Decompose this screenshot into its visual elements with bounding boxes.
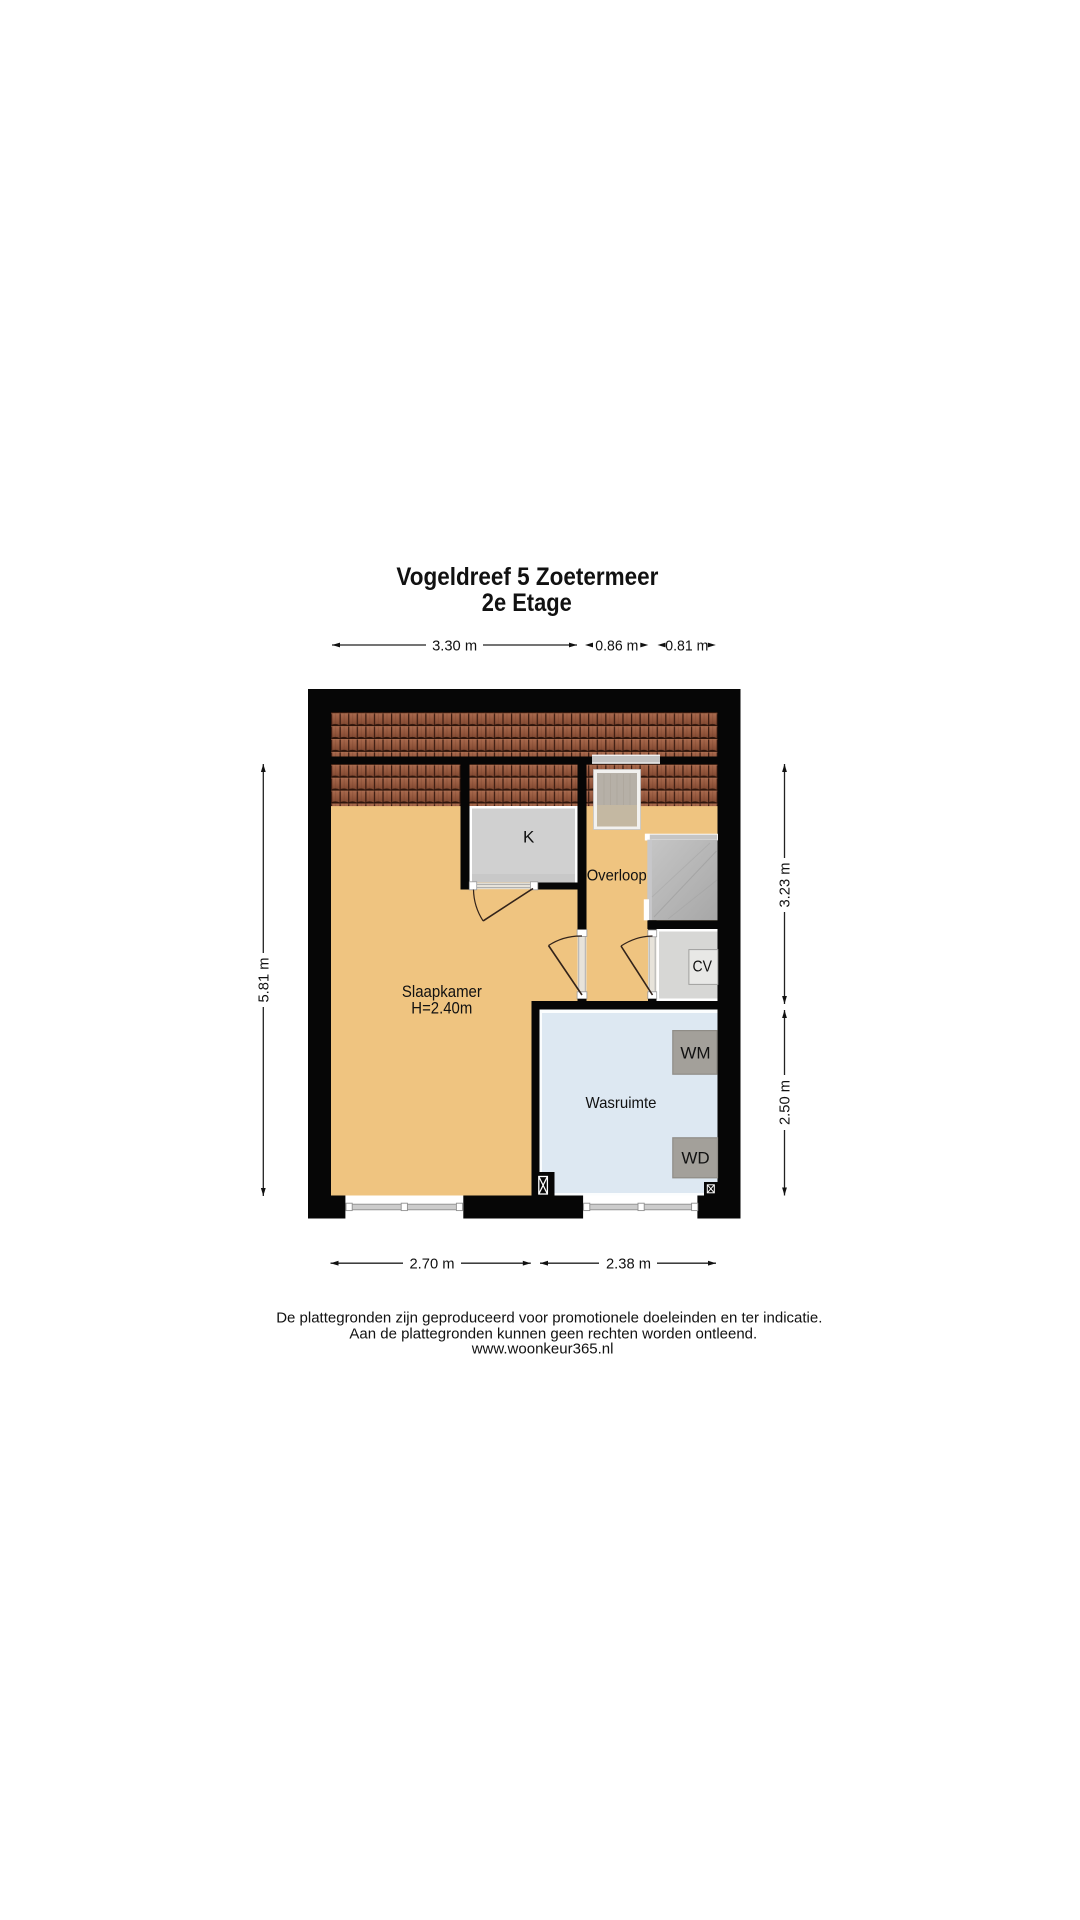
svg-text:2e Etage: 2e Etage <box>482 589 572 617</box>
svg-text:H=2.40m: H=2.40m <box>411 999 472 1017</box>
svg-text:Overloop: Overloop <box>587 868 647 885</box>
svg-text:5.81 m: 5.81 m <box>256 958 273 1003</box>
svg-text:Vogeldreef 5 Zoetermeer: Vogeldreef 5 Zoetermeer <box>396 563 658 591</box>
svg-text:2.38 m: 2.38 m <box>606 1256 651 1273</box>
svg-text:K: K <box>523 828 535 847</box>
svg-text:0.81 m: 0.81 m <box>665 637 708 654</box>
svg-text:CV: CV <box>692 959 712 976</box>
svg-text:2.50 m: 2.50 m <box>777 1080 794 1125</box>
svg-text:WM: WM <box>680 1044 710 1063</box>
svg-text:De plattegronden zijn geproduc: De plattegronden zijn geproduceerd voor … <box>276 1310 822 1327</box>
svg-text:3.23 m: 3.23 m <box>777 863 794 908</box>
svg-text:Wasruimte: Wasruimte <box>586 1095 657 1112</box>
svg-text:Slaapkamer: Slaapkamer <box>402 983 482 1001</box>
svg-text:WD: WD <box>681 1149 709 1168</box>
svg-text:www.woonkeur365.nl: www.woonkeur365.nl <box>471 1341 614 1358</box>
svg-text:3.30 m: 3.30 m <box>432 637 477 654</box>
svg-text:0.86 m: 0.86 m <box>595 637 638 654</box>
svg-text:2.70 m: 2.70 m <box>410 1256 455 1273</box>
